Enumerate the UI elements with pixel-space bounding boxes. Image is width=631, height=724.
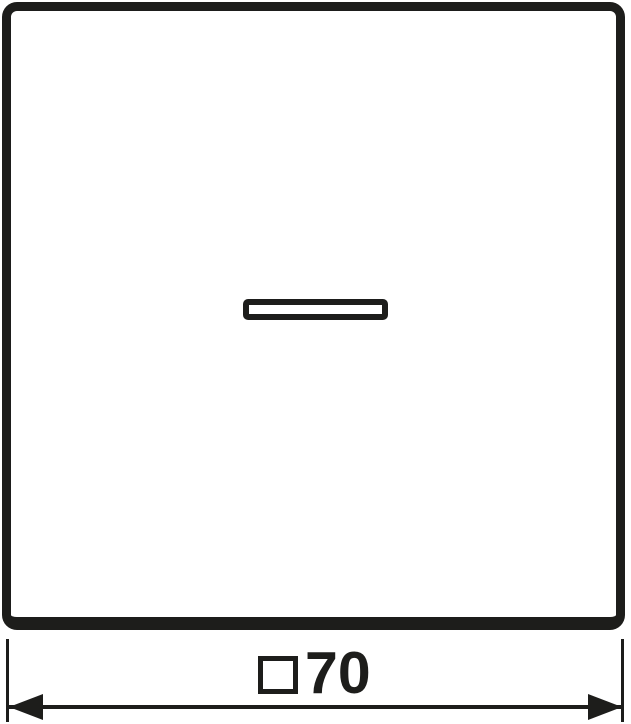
square-symbol-icon <box>258 656 298 694</box>
drawing-canvas: 70 <box>0 0 631 724</box>
indicator-window <box>243 299 388 320</box>
arrowhead-left-icon <box>9 694 43 720</box>
arrowhead-right-icon <box>588 694 622 720</box>
dimension-label: 70 <box>258 650 371 696</box>
dimension-value: 70 <box>305 650 371 696</box>
